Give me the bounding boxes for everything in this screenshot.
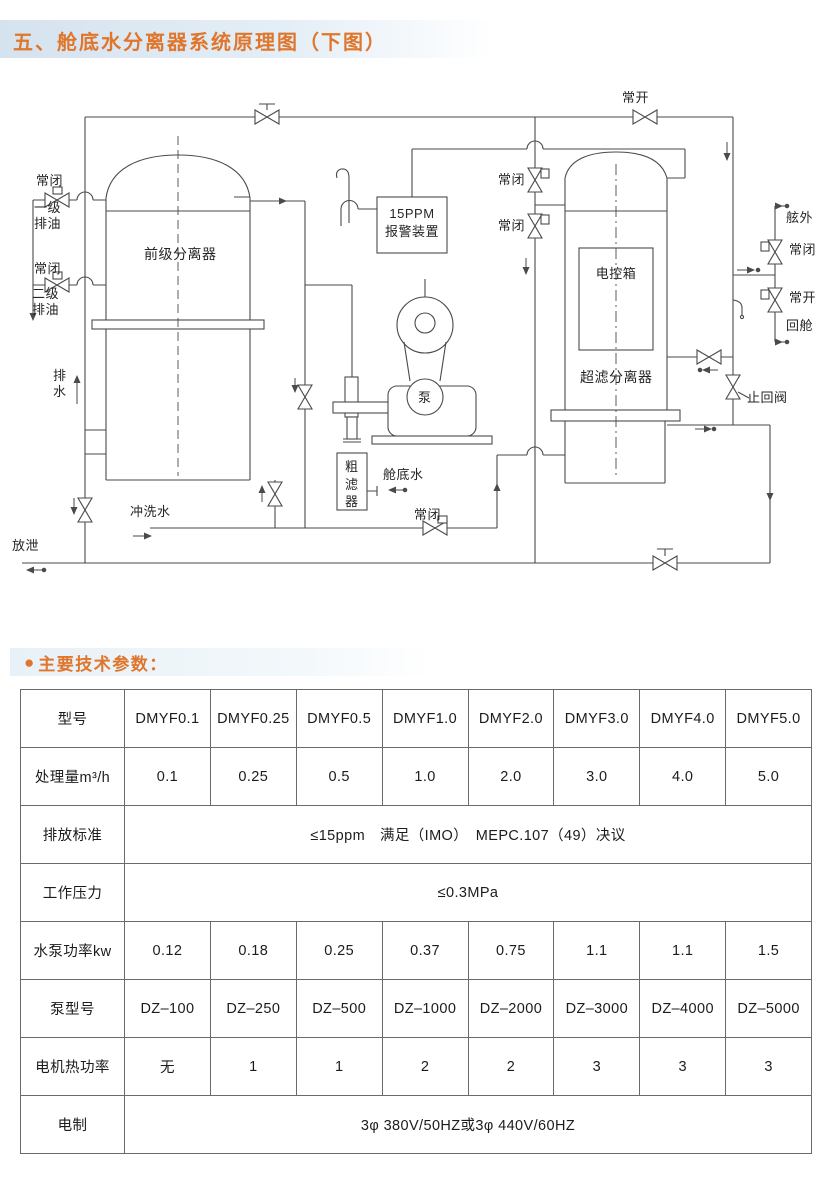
- spec-cell: 3.0: [554, 748, 640, 806]
- row-capacity: 处理量m³/h 0.1 0.25 0.5 1.0 2.0 3.0 4.0 5.0: [21, 748, 812, 806]
- label-check-valve: 止回阀: [747, 390, 788, 406]
- label-bilge-water: 舱底水: [383, 467, 424, 483]
- spec-cell: DZ–3000: [554, 980, 640, 1038]
- row-label-working-pressure: 工作压力: [21, 864, 125, 922]
- spec-cell: 2: [382, 1038, 468, 1096]
- spec-cell: 5.0: [726, 748, 812, 806]
- spec-cell: DZ–5000: [726, 980, 812, 1038]
- label-15ppm: 15PPM: [377, 206, 447, 222]
- bilge-separator-schematic: 常闭 一级排油 常闭 二级排油 前级分离器 排水 冲洗水 放泄 15PPM 报警…: [0, 80, 830, 628]
- row-model: 型号 DMYF0.1 DMYF0.25 DMYF0.5 DMYF1.0 DMYF…: [21, 690, 812, 748]
- spec-cell: DMYF1.0: [382, 690, 468, 748]
- row-label-capacity: 处理量m³/h: [21, 748, 125, 806]
- label-pump: 泵: [418, 390, 432, 406]
- label-normally-open-right: 常开: [789, 290, 816, 306]
- label-flush-water: 冲洗水: [130, 504, 171, 520]
- spec-cell: 0.75: [468, 922, 554, 980]
- label-overboard: 舷外: [786, 210, 813, 226]
- spec-cell: 0.5: [296, 748, 382, 806]
- spec-cell: 0.18: [210, 922, 296, 980]
- specs-table: 型号 DMYF0.1 DMYF0.25 DMYF0.5 DMYF1.0 DMYF…: [20, 689, 812, 1154]
- row-label-heater-power: 电机热功率: [21, 1038, 125, 1096]
- spec-cell: 1.1: [554, 922, 640, 980]
- spec-cell: DMYF2.0: [468, 690, 554, 748]
- spec-cell: 2.0: [468, 748, 554, 806]
- label-stage1-oil-discharge: 一级排油: [34, 200, 66, 232]
- row-discharge-standard: 排放标准 ≤15ppm 满足（IMO） MEPC.107（49）决议: [21, 806, 812, 864]
- params-heading-band: ● 主要技术参数：: [10, 648, 430, 676]
- spec-cell: DMYF0.5: [296, 690, 382, 748]
- row-label-pump-model: 泵型号: [21, 980, 125, 1038]
- label-coarse-filter: 粗滤器: [345, 458, 360, 511]
- label-vent: 放泄: [12, 538, 39, 554]
- spec-cell: 0.25: [210, 748, 296, 806]
- label-normally-closed-1: 常闭: [36, 173, 63, 189]
- label-normally-closed-mid-2: 常闭: [498, 218, 525, 234]
- spec-cell: 3: [726, 1038, 812, 1096]
- spec-cell: DZ–1000: [382, 980, 468, 1038]
- label-normally-closed-2: 常闭: [34, 261, 61, 277]
- row-pump-power: 水泵功率kw 0.12 0.18 0.25 0.37 0.75 1.1 1.1 …: [21, 922, 812, 980]
- row-working-pressure: 工作压力 ≤0.3MPa: [21, 864, 812, 922]
- catalog-page: 五、舱底水分离器系统原理图（下图）: [0, 0, 830, 1185]
- params-heading: 主要技术参数：: [38, 650, 168, 675]
- spec-cell: 0.37: [382, 922, 468, 980]
- spec-span-cell: ≤15ppm 满足（IMO） MEPC.107（49）决议: [125, 806, 812, 864]
- schematic-drawing: [0, 80, 830, 628]
- label-control-box: 电控箱: [579, 266, 653, 282]
- spec-span-cell: ≤0.3MPa: [125, 864, 812, 922]
- pipework: [22, 117, 786, 563]
- label-normally-closed-right: 常闭: [789, 242, 816, 258]
- spec-cell: DMYF0.1: [125, 690, 211, 748]
- spec-cell: 1.5: [726, 922, 812, 980]
- spec-cell: 1: [210, 1038, 296, 1096]
- spec-cell: 无: [125, 1038, 211, 1096]
- spec-cell: 0.12: [125, 922, 211, 980]
- spec-cell: 3: [640, 1038, 726, 1096]
- row-electric-system: 电制 3φ 380V/50HZ或3φ 440V/60HZ: [21, 1096, 812, 1154]
- spec-cell: 1.1: [640, 922, 726, 980]
- row-label-discharge-standard: 排放标准: [21, 806, 125, 864]
- label-pre-separator: 前级分离器: [144, 246, 217, 263]
- spec-cell: DMYF5.0: [726, 690, 812, 748]
- spec-cell: 0.1: [125, 748, 211, 806]
- row-heater-power: 电机热功率 无 1 1 2 2 3 3 3: [21, 1038, 812, 1096]
- label-normally-open-top: 常开: [622, 90, 649, 106]
- orange-bullet-icon: ●: [24, 654, 34, 671]
- label-drain-water: 排水: [53, 368, 68, 400]
- spec-cell: DMYF3.0: [554, 690, 640, 748]
- spec-cell: 3: [554, 1038, 640, 1096]
- label-normally-closed-mid-1: 常闭: [498, 172, 525, 188]
- label-return-cabin: 回舱: [786, 318, 813, 334]
- row-pump-model: 泵型号 DZ–100 DZ–250 DZ–500 DZ–1000 DZ–2000…: [21, 980, 812, 1038]
- label-alarm-device: 报警装置: [377, 224, 447, 240]
- spec-cell: DZ–500: [296, 980, 382, 1038]
- spec-cell: DZ–100: [125, 980, 211, 1038]
- spec-cell: 1.0: [382, 748, 468, 806]
- label-uf-separator: 超滤分离器: [580, 369, 653, 386]
- spec-cell: DMYF0.25: [210, 690, 296, 748]
- spec-cell: DZ–4000: [640, 980, 726, 1038]
- spec-cell: 4.0: [640, 748, 726, 806]
- spec-cell: DZ–2000: [468, 980, 554, 1038]
- spec-cell: DZ–250: [210, 980, 296, 1038]
- label-stage2-oil-discharge: 二级排油: [32, 286, 64, 318]
- spec-cell: 0.25: [296, 922, 382, 980]
- row-label-model: 型号: [21, 690, 125, 748]
- row-label-pump-power: 水泵功率kw: [21, 922, 125, 980]
- row-label-electric-system: 电制: [21, 1096, 125, 1154]
- spec-cell: DMYF4.0: [640, 690, 726, 748]
- spec-cell: 2: [468, 1038, 554, 1096]
- page-title: 五、舱底水分离器系统原理图（下图）: [13, 26, 387, 55]
- spec-span-cell: 3φ 380V/50HZ或3φ 440V/60HZ: [125, 1096, 812, 1154]
- label-normally-closed-bottom: 常闭: [414, 507, 441, 523]
- spec-cell: 1: [296, 1038, 382, 1096]
